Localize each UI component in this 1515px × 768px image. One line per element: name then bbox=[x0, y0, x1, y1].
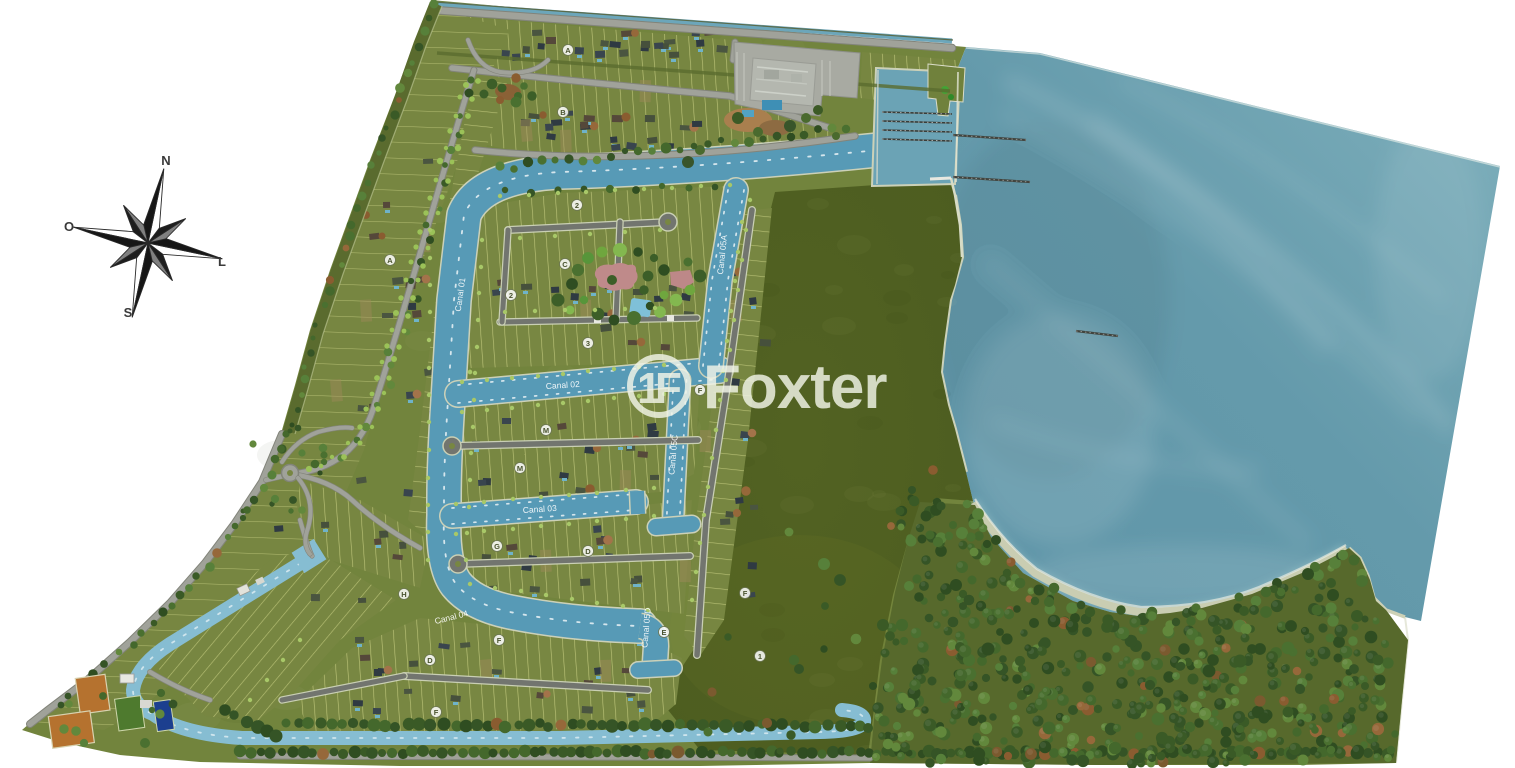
svg-text:F: F bbox=[698, 386, 703, 395]
svg-text:N: N bbox=[161, 153, 170, 168]
svg-text:F: F bbox=[434, 708, 439, 717]
svg-text:G: G bbox=[494, 542, 500, 551]
svg-text:O: O bbox=[64, 219, 74, 234]
svg-text:F: F bbox=[655, 364, 682, 413]
svg-text:2: 2 bbox=[509, 291, 513, 300]
svg-text:3: 3 bbox=[586, 339, 590, 348]
svg-text:2: 2 bbox=[575, 201, 579, 210]
svg-text:A: A bbox=[387, 256, 393, 265]
svg-text:Foxter: Foxter bbox=[703, 353, 887, 422]
svg-text:H: H bbox=[401, 590, 406, 599]
svg-text:1: 1 bbox=[758, 652, 762, 661]
svg-text:B: B bbox=[560, 108, 566, 117]
svg-text:E: E bbox=[661, 628, 666, 637]
svg-text:M: M bbox=[517, 464, 523, 473]
svg-text:L: L bbox=[218, 254, 226, 269]
svg-text:F: F bbox=[743, 589, 748, 598]
svg-text:A: A bbox=[565, 46, 571, 55]
svg-text:F: F bbox=[497, 636, 502, 645]
svg-text:C: C bbox=[562, 260, 568, 269]
svg-text:D: D bbox=[427, 656, 433, 665]
svg-text:D: D bbox=[585, 547, 591, 556]
svg-text:S: S bbox=[124, 305, 133, 320]
svg-text:M: M bbox=[543, 426, 549, 435]
